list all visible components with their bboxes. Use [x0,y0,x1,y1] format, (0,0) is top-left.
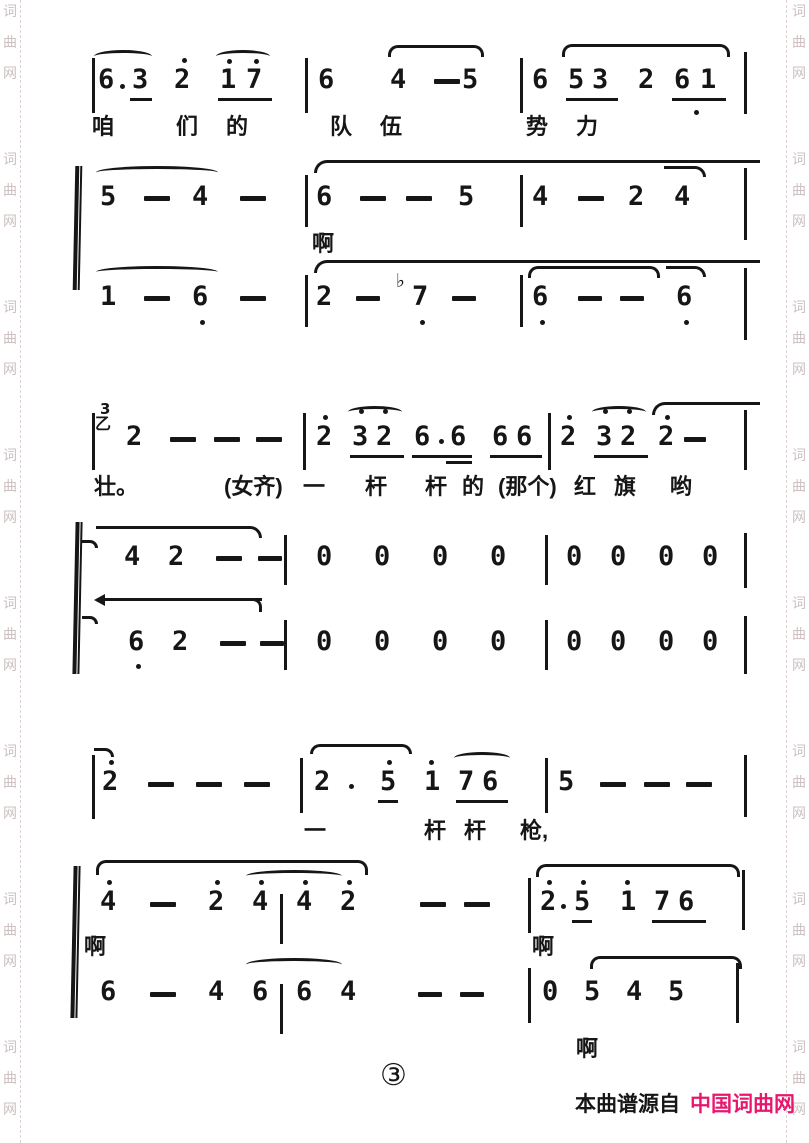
duration-dash [256,437,282,442]
octave-dot [383,409,388,414]
note: 4 [532,183,548,210]
note: 2 [658,423,674,450]
barline [303,413,306,470]
duration-dash [144,196,170,201]
barline [280,894,283,944]
beam-underline [456,800,508,803]
note: 4 [252,888,268,915]
lyric: 势 [526,116,548,138]
note: 4 [674,183,690,210]
watermark-char: 网 [3,66,17,80]
octave-dot [349,784,354,789]
barline [545,535,548,585]
note: 0 [432,628,448,655]
slur-hook-right [82,616,98,624]
note: 5 [584,978,600,1005]
watermark-char: 网 [792,214,806,228]
slur-hook-right [94,748,114,757]
note: 7 [458,768,474,795]
duration-dash [644,782,670,787]
watermark-char: 曲 [3,775,17,789]
duration-dash [260,641,284,646]
octave-dot [420,320,425,325]
note: 0 [316,543,332,570]
note: 3 [592,66,608,93]
note: 2 [314,768,330,795]
note: 7 [246,66,262,93]
note: 1 [424,768,440,795]
watermark-char: 网 [792,806,806,820]
slur-hook-right [82,540,98,548]
lyric: 红 [574,476,596,498]
note: 1 [700,66,716,93]
octave-dot [561,904,566,909]
duration-dash [150,902,176,907]
note: 0 [542,978,558,1005]
footer-site-link[interactable]: 中国词曲网 [690,1088,795,1118]
lyric: 杆 [424,820,446,842]
watermark-char: 曲 [792,331,806,345]
lyric: 杆 [365,476,387,498]
slur-arc [454,752,510,764]
note: 1 [100,283,116,310]
octave-dot [540,320,545,325]
octave-dot [429,760,434,765]
lyric: 咱 [92,116,114,138]
system-brace [73,166,83,290]
watermark-char: 词 [792,892,806,906]
watermark-char: 网 [792,954,806,968]
beam-underline [218,98,272,101]
watermark-char: 网 [792,66,806,80]
watermark-char: 词 [3,152,17,166]
note: 0 [702,543,718,570]
lyric: 们 [176,116,198,138]
lyric: 的 [462,476,484,498]
beam-underline [572,920,592,923]
note: 0 [432,543,448,570]
lyric: 力 [576,116,598,138]
watermark-char: 曲 [3,923,17,937]
watermark-char: 词 [792,1040,806,1054]
note: 0 [610,543,626,570]
note: 5 [568,66,584,93]
watermark-char: 曲 [3,35,17,49]
beam-underline [566,98,618,101]
octave-dot [684,320,689,325]
beam-underline [412,455,472,458]
note: 2 [172,628,188,655]
note: 0 [566,628,582,655]
watermark-char: 词 [3,892,17,906]
note: 3 [596,423,612,450]
lyric: 的 [226,116,248,138]
barline [520,58,523,113]
note: 0 [610,628,626,655]
lyric: 杆 [425,476,447,498]
lyric: 啊 [312,233,334,255]
barline [744,533,747,588]
duration-dash [244,782,270,787]
music-symbol: 乙 [95,416,111,432]
watermark-char: 网 [3,510,17,524]
note: 0 [490,543,506,570]
watermark-char: 曲 [792,35,806,49]
duration-dash [686,782,712,787]
beam-underline [130,98,152,101]
note: 2 [376,423,392,450]
watermark-char: 曲 [792,479,806,493]
barline [92,755,95,819]
slur-hook-right [664,166,706,177]
duration-dash [684,437,706,442]
barline [744,268,747,340]
duration-dash [452,296,476,301]
barline [284,620,287,670]
note: 3 [352,423,368,450]
watermark-char: 词 [792,744,806,758]
note: 6 [516,423,532,450]
note: 5 [558,768,574,795]
watermark-char: 曲 [3,183,17,197]
barline [744,52,747,114]
barline [742,870,745,930]
note: 5 [574,888,590,915]
lyric: 哟 [670,476,692,498]
barline [736,963,739,1023]
watermark-char: 词 [3,448,17,462]
note: 4 [100,888,116,915]
slur-bracket [310,744,412,754]
note: 0 [566,543,582,570]
note: 2 [628,183,644,210]
lyric: 啊 [84,936,106,958]
slur-arc [592,406,646,418]
footer-source-label: 本曲谱源自 [575,1088,680,1118]
octave-dot [182,58,187,63]
duration-dash [240,196,266,201]
note: 7 [412,283,428,310]
octave-dot [387,760,392,765]
note: 7 [654,888,670,915]
watermark-char: 网 [3,658,17,672]
duration-dash [420,902,446,907]
note: 4 [124,543,140,570]
note: 6 [98,66,114,93]
note: 2 [102,768,118,795]
slur-bracket [536,864,740,877]
barline [280,984,283,1034]
barline [528,878,531,933]
duration-dash [460,992,484,997]
octave-dot [665,415,670,420]
duration-dash [214,437,240,442]
barline [520,275,523,327]
system-brace [70,866,80,1018]
slur-hook-right [666,266,706,277]
duration-dash [144,296,170,301]
note: 2 [168,543,184,570]
note: 0 [316,628,332,655]
note: 6 [674,66,690,93]
watermark-char: 曲 [3,479,17,493]
duration-dash [360,196,386,201]
slur-arc [348,406,402,418]
duration-dash [434,79,460,84]
note: 0 [374,543,390,570]
note: 5 [458,183,474,210]
watermark-char: 曲 [3,627,17,641]
note: 6 [482,768,498,795]
barline [284,535,287,585]
lyric: 杆 [464,820,486,842]
duration-dash [196,782,222,787]
note: 0 [658,628,674,655]
octave-dot [347,880,352,885]
slur-arc [246,958,342,971]
music-symbol: ♭ [396,272,405,291]
watermark-dashed-line [20,0,21,1143]
octave-dot [439,439,444,444]
watermark-char: 词 [792,596,806,610]
note: 6 [318,66,334,93]
watermark-char: 网 [792,362,806,376]
note: 6 [252,978,268,1005]
duration-dash [406,196,432,201]
note: 6 [678,888,694,915]
watermark-char: 网 [792,510,806,524]
duration-dash [216,556,242,561]
watermark-char: 词 [792,152,806,166]
duration-dash [356,296,380,301]
duration-dash [170,437,196,442]
octave-dot [109,760,114,765]
lyric: 一 [303,476,325,498]
barline [744,410,747,470]
watermark-char: 词 [3,596,17,610]
barline [545,758,548,813]
note: 6 [532,283,548,310]
note: 2 [638,66,654,93]
note: 6 [316,183,332,210]
octave-dot [359,409,364,414]
octave-dot [694,110,699,115]
beam-underline [490,455,542,458]
note: 4 [390,66,406,93]
watermark-char: 词 [792,300,806,314]
octave-dot [136,664,141,669]
lyric: 啊 [576,1038,598,1060]
lyric: (女齐) [224,476,283,498]
beam-underline [378,800,398,803]
lyric: 队 [330,116,352,138]
barline [305,58,308,113]
note: 5 [462,66,478,93]
watermark-char: 网 [792,658,806,672]
barline [548,413,551,470]
octave-dot [567,415,572,420]
lyric: 壮。 [94,476,138,498]
watermark-char: 词 [3,300,17,314]
note: 4 [626,978,642,1005]
slur-arc [96,266,218,278]
sheet-music-page: 63217645653261咱们的队伍势力5465424啊162♭7663乙22… [0,0,809,1143]
octave-dot [581,880,586,885]
note: 1 [620,888,636,915]
lyric: 啊 [532,936,554,958]
barline [92,58,95,113]
octave-dot [259,880,264,885]
note: 0 [702,628,718,655]
note: 6 [450,423,466,450]
note: 6 [296,978,312,1005]
note: 5 [100,183,116,210]
duration-dash [578,196,604,201]
note: 0 [490,628,506,655]
note: 6 [676,283,692,310]
note: 4 [208,978,224,1005]
octave-dot [120,84,125,89]
page-number: ③ [380,1058,407,1093]
slur-hook-right [96,526,262,538]
note: 6 [414,423,430,450]
barline [744,168,747,240]
barline [300,758,303,813]
watermark-char: 网 [3,214,17,228]
tie-arrow [90,594,262,608]
barline [744,755,747,817]
note: 2 [316,423,332,450]
watermark-char: 词 [3,1040,17,1054]
barline [545,620,548,670]
duration-dash [220,641,246,646]
barline [520,175,523,227]
duration-dash [258,556,282,561]
duration-dash [578,296,602,301]
lyric: 一 [304,820,326,842]
note: 4 [296,888,312,915]
barline [744,616,747,674]
octave-dot [547,880,552,885]
note: 3 [132,66,148,93]
note: 6 [192,283,208,310]
watermark-char: 词 [3,744,17,758]
note: 6 [492,423,508,450]
duration-dash [148,782,174,787]
note: 1 [220,66,236,93]
watermark-char: 曲 [792,923,806,937]
watermark-char: 网 [3,954,17,968]
barline [305,275,308,327]
note: 2 [316,283,332,310]
slur-bracket [528,266,660,278]
duration-dash [418,992,442,997]
watermark-char: 网 [3,362,17,376]
note: 2 [174,66,190,93]
watermark-char: 词 [792,4,806,18]
note: 2 [126,423,142,450]
slur-bracket [562,44,730,57]
note: 0 [658,543,674,570]
barline [305,175,308,227]
slur-bracket [388,45,484,57]
watermark-char: 曲 [3,1071,17,1085]
note: 5 [380,768,396,795]
barline [528,968,531,1023]
note: 4 [192,183,208,210]
watermark-char: 曲 [3,331,17,345]
lyric: 伍 [380,116,402,138]
octave-dot [303,880,308,885]
octave-dot [627,409,632,414]
octave-dot [107,880,112,885]
watermark-char: 网 [3,806,17,820]
watermark-char: 曲 [792,775,806,789]
octave-dot [215,880,220,885]
slur-arc [94,50,152,63]
watermark-char: 曲 [792,183,806,197]
duration-dash [240,296,266,301]
duration-dash [464,902,490,907]
note: 4 [340,978,356,1005]
arrow-head [88,594,105,606]
duration-dash [600,782,626,787]
note: 2 [620,423,636,450]
watermark-char: 曲 [792,1071,806,1085]
octave-dot [323,415,328,420]
beam-underline [652,920,706,923]
octave-dot [625,880,630,885]
watermark-char: 词 [792,448,806,462]
watermark-char: 词 [3,4,17,18]
note: 5 [668,978,684,1005]
watermark-dashed-line [786,0,787,1143]
octave-dot [603,409,608,414]
beam-underline [594,455,648,458]
note: 0 [374,628,390,655]
beam-underline-2 [446,461,472,464]
slur-arc [216,50,270,63]
octave-dot [200,320,205,325]
slur-bracket [590,956,742,969]
note: 6 [100,978,116,1005]
watermark-char: 曲 [792,627,806,641]
duration-dash [620,296,644,301]
note: 2 [540,888,556,915]
lyric: 旗 [614,476,636,498]
note: 2 [560,423,576,450]
note: 2 [208,888,224,915]
slur-arc [96,166,218,179]
note: 6 [128,628,144,655]
lyric: 枪, [520,820,548,842]
watermark-char: 网 [3,1102,17,1116]
beam-underline [350,455,404,458]
note: 6 [532,66,548,93]
note: 2 [340,888,356,915]
beam-underline [672,98,726,101]
lyric: (那个) [498,476,557,498]
duration-dash [150,992,176,997]
